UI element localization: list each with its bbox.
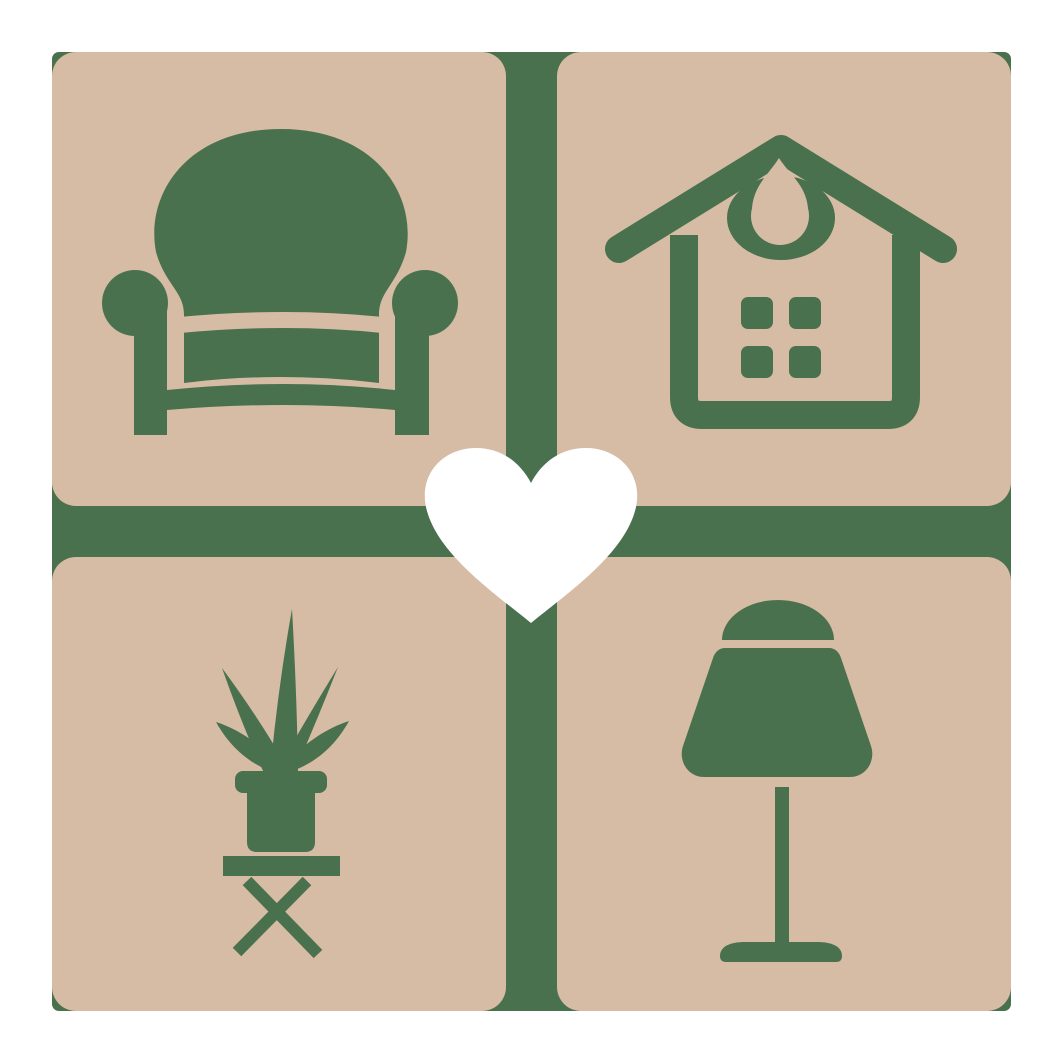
- tile-armchair: [52, 52, 506, 506]
- tile-plant: [52, 557, 506, 1011]
- logo-canvas: [0, 0, 1063, 1063]
- heart-icon: [422, 446, 640, 624]
- house-icon: [557, 52, 1011, 506]
- tile-house: [557, 52, 1011, 506]
- tile-lamp: [557, 557, 1011, 1011]
- potted-plant-icon: [52, 557, 506, 1011]
- logo: [52, 52, 1011, 1011]
- table-lamp-icon: [557, 557, 1011, 1011]
- armchair-icon: [52, 52, 506, 506]
